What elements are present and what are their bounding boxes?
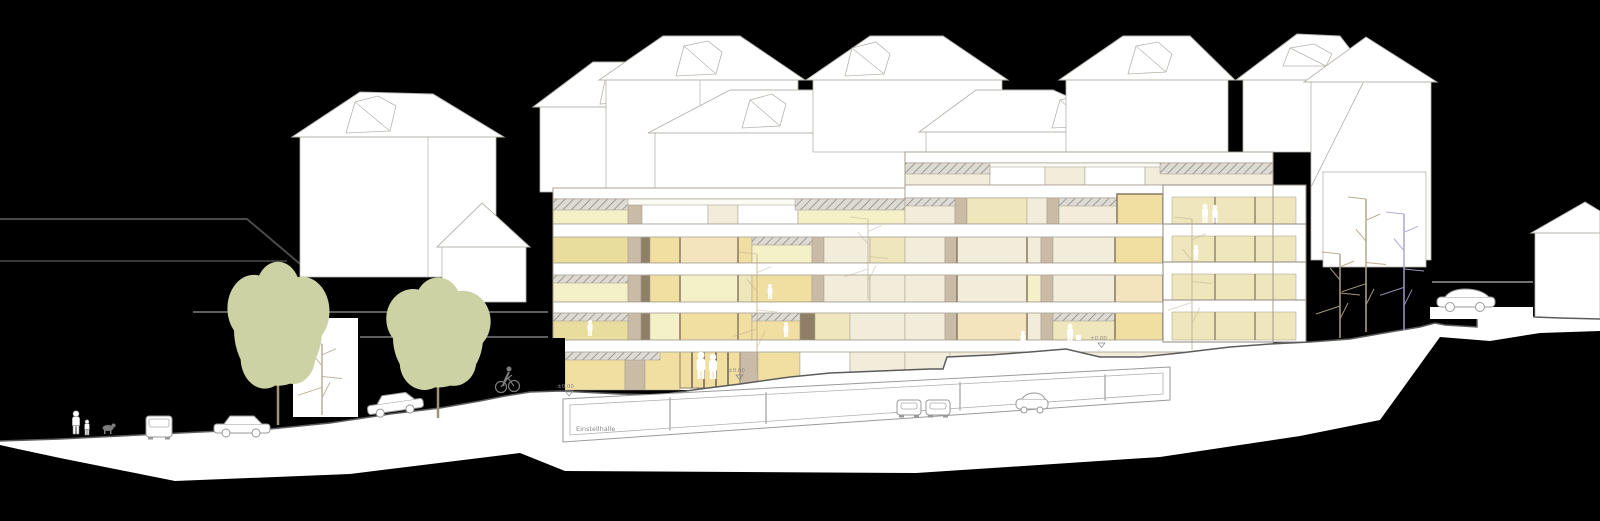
window-panel [650, 237, 680, 263]
window-panel [1041, 313, 1053, 340]
window-panel [738, 275, 752, 302]
person-figure-leg [714, 370, 717, 380]
window-panel [850, 313, 905, 340]
person-figure-leg [1196, 254, 1198, 260]
window-panel [1027, 198, 1047, 224]
window-panel [641, 237, 650, 263]
shopping-bag [1076, 335, 1081, 340]
window-panel [870, 237, 905, 263]
window-panel [738, 237, 752, 263]
garage-car-wheel [943, 415, 948, 418]
person-figure-leg [768, 293, 770, 299]
window-panel [945, 275, 957, 302]
bay-window [957, 233, 1027, 265]
window-panel [1027, 275, 1041, 302]
window-panel [905, 313, 945, 340]
person-figure-leg [784, 331, 786, 337]
car-wheel [376, 409, 385, 418]
person-figure-head [768, 284, 772, 288]
window-panel [905, 237, 945, 263]
dog [103, 424, 116, 435]
window-panel [1027, 313, 1041, 340]
tree-canopy [256, 262, 300, 318]
attic-window [738, 205, 798, 224]
suv-cabin [1445, 289, 1489, 297]
person-figure-head [1021, 331, 1025, 335]
level-marker-left: ±0.00 [557, 384, 574, 390]
person-figure-leg [1194, 254, 1196, 260]
person-figure-leg [1215, 216, 1217, 223]
car-wheel [405, 404, 414, 413]
garage-car-wheel [928, 415, 933, 418]
pedestrian-leg [87, 429, 89, 435]
loggia-glazing [1172, 312, 1296, 340]
hatched-balustrade [553, 313, 628, 321]
bay-window [1117, 194, 1163, 226]
window-panel [738, 313, 752, 340]
loggia-glazing [1172, 274, 1296, 302]
suv-wheel [1446, 303, 1455, 312]
person-figure-leg [770, 293, 772, 299]
window-panel [815, 313, 850, 340]
window-panel [553, 237, 628, 263]
person-figure-head [1194, 245, 1198, 249]
person-figure-head [1068, 324, 1073, 329]
person-figure-head [697, 352, 704, 359]
window-panel [824, 275, 870, 302]
person-figure-leg [702, 369, 705, 379]
window-panel [1047, 198, 1059, 224]
garage-car [926, 400, 950, 415]
level-marker-entrance: ±0.00 [728, 368, 745, 374]
dog-leg [104, 430, 106, 434]
garage-car [1016, 399, 1048, 409]
window-panel [945, 313, 957, 340]
window-panel [752, 275, 812, 302]
retaining-wall-line [0, 219, 312, 274]
window-panel [870, 275, 905, 302]
window-panel [945, 237, 957, 263]
dog-head [112, 424, 116, 428]
person-figure-leg [1068, 336, 1070, 343]
cyclist-head [507, 367, 512, 372]
van-wheel [165, 437, 170, 440]
hatched-balustrade [905, 163, 990, 174]
hatched-balustrade [752, 313, 800, 321]
window-panel [1053, 275, 1115, 302]
bay-window [957, 271, 1027, 304]
attic-window [708, 205, 738, 224]
house-wall [1066, 80, 1228, 152]
window-panel [650, 313, 680, 340]
window-panel [1041, 237, 1053, 263]
roof-parapet-right [905, 152, 1273, 163]
person-figure-head [1203, 204, 1208, 209]
hatched-balustrade [1059, 198, 1117, 206]
window-panel [812, 275, 824, 302]
tree-canopy [431, 336, 476, 386]
window-panel [824, 237, 870, 263]
attic-window [990, 167, 1045, 185]
person-figure-leg [1023, 340, 1025, 346]
bay-window [1115, 271, 1163, 304]
hatched-balustrade [752, 237, 812, 245]
car-wheel [222, 429, 230, 437]
garage-car-wheel [1037, 407, 1043, 413]
person-figure-leg [1203, 216, 1205, 223]
bay-window [680, 233, 738, 265]
pedestrian [72, 411, 79, 434]
garage-car-wheel [914, 415, 919, 418]
person-figure-leg [1205, 216, 1207, 223]
roof-parapet-left [553, 188, 905, 199]
car-wheel [252, 429, 260, 437]
bay-window [957, 309, 1027, 342]
pedestrian-head [85, 420, 89, 424]
window-panel [812, 237, 824, 263]
person-figure-leg [588, 330, 590, 336]
person-figure-leg [1070, 336, 1072, 343]
pedestrian-leg [76, 425, 79, 434]
garage-car [897, 400, 921, 415]
person-figure-leg [710, 370, 713, 380]
garage-label: Einstellhalle [576, 425, 615, 433]
hatched-balustrade [1160, 163, 1273, 174]
pedestrian [85, 420, 90, 435]
attic-window [642, 205, 708, 224]
person-figure-leg [697, 369, 700, 379]
cyclist [496, 367, 520, 393]
window-panel [628, 313, 641, 340]
house-wall [1323, 172, 1426, 267]
house-roof [1531, 202, 1600, 233]
garage-car-wheel [1021, 407, 1027, 413]
van-wheel [148, 437, 153, 440]
tree-canopy [416, 278, 461, 328]
house-wall [1535, 233, 1600, 320]
loggia-glazing [1172, 197, 1296, 224]
level-marker-right: ±0.00 [1090, 336, 1107, 342]
bay-window [1115, 309, 1163, 342]
window-panel [1053, 237, 1115, 263]
elevation-drawing: Einstellhalle ±0.00 ±0.00 ±0.00 [0, 0, 1600, 521]
window-panel [641, 275, 650, 302]
pedestrian-leg [85, 429, 87, 435]
person-figure-leg [1021, 340, 1023, 346]
person-figure-head [784, 322, 788, 326]
person-figure-leg [786, 331, 788, 337]
pedestrian-head [73, 411, 79, 417]
attic-window [628, 205, 642, 224]
person-figure-leg [1213, 216, 1215, 223]
hatched-balustrade [553, 199, 628, 210]
window-panel [1041, 275, 1053, 302]
hatched-balustrade [795, 199, 905, 210]
car-cabin [224, 416, 262, 424]
attic-window [1045, 167, 1085, 185]
attic-window [1085, 167, 1145, 185]
person-figure-leg [590, 330, 592, 336]
bay-window [1115, 233, 1163, 265]
window-panel [650, 275, 680, 302]
bay-window [680, 309, 738, 342]
suv-wheel [1476, 303, 1485, 312]
window-panel [628, 275, 641, 302]
garage-car-wheel [899, 415, 904, 418]
tree-canopy [271, 328, 315, 384]
hatched-balustrade [553, 275, 628, 283]
hatched-balustrade [1053, 313, 1115, 321]
person-figure-head [1213, 205, 1218, 210]
hatched-balustrade [565, 352, 660, 360]
window-panel [628, 237, 641, 263]
pedestrian-leg [73, 425, 76, 434]
hatched-balustrade [905, 198, 955, 206]
window-panel [967, 198, 1027, 224]
person-figure-head [710, 354, 717, 361]
house-roof [806, 36, 1008, 80]
window-panel [905, 275, 945, 302]
window-panel [800, 313, 815, 340]
person-figure-head [588, 320, 592, 324]
elevation-canvas: Einstellhalle ±0.00 ±0.00 ±0.00 [0, 0, 1600, 521]
bay-window [680, 271, 738, 304]
window-panel [1027, 237, 1041, 263]
window-panel [955, 198, 967, 224]
house-roof [292, 92, 504, 137]
dog-leg [110, 430, 112, 434]
window-panel [641, 313, 650, 340]
